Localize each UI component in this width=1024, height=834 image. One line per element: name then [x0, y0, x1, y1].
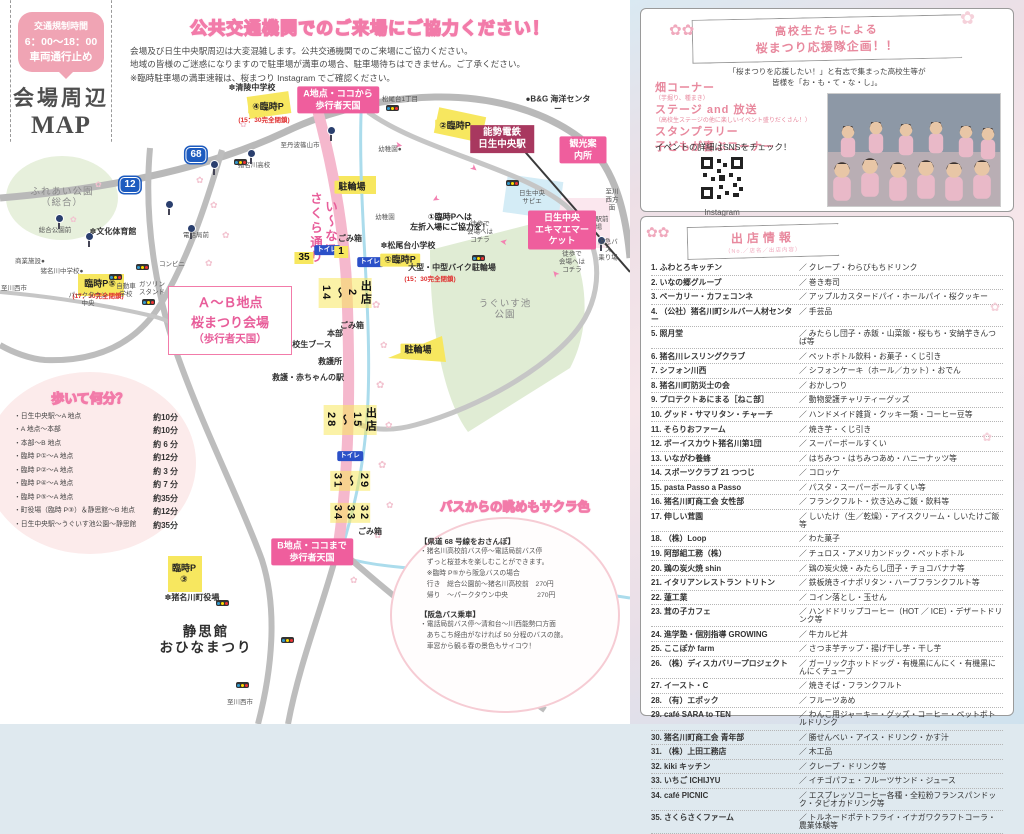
walk-time-row: ・臨時 P⑤～A 地点約35分 — [14, 492, 178, 505]
shop-row: 10. グッド・サマリタン・チャーチ／ハンドメイド雑貨・クッキー類・コーヒー豆等 — [651, 408, 1003, 423]
walk-time-row: ・臨時 P④～A 地点約 7 分 — [14, 478, 178, 491]
shop-row: 2. いなの郷グループ／巻き寿司 — [651, 276, 1003, 291]
shop-items: クレープ・わらびもちドリンク — [809, 263, 918, 272]
bus-info-line: あちこち経由がなければ 50 分程のバスの旅。 — [420, 631, 598, 642]
shop-name: 20. 鶏の炭火焼 shin — [651, 565, 799, 573]
bus-info-line: 車窓から観る春の景色もサイコウ！ — [420, 642, 598, 653]
shop-name: 3. ベーカリー・カフェコンネ — [651, 293, 799, 301]
walk-time-row: ・A 地点～本部約10分 — [14, 424, 178, 437]
walk-times-title: 歩いて何分？ — [0, 388, 196, 407]
walk-times-panel: 歩いて何分？ ・日生中央駅～A 地点約10分・A 地点～本部約10分・本部～B … — [0, 372, 196, 554]
walk-route: ・本部～B 地点 — [14, 438, 61, 451]
map-label: 至川西市 — [1, 285, 27, 293]
map-label: (15：30完全閉鎖) — [404, 276, 455, 284]
flyer-page: 交通規制時間 6：00～18：00 車両通行止め 会場周辺 MAP 公共交通機関… — [0, 0, 1024, 724]
shop-name: 10. グッド・サマリタン・チャーチ — [651, 411, 799, 419]
shop-items-cell: ／わた菓子 — [799, 535, 1003, 543]
map-label: 至丹波篠山市 — [281, 142, 320, 150]
shop-row: 5. 照月堂／みたらし団子・赤飯・山菜飯・桜もち・安納芋きんつば等 — [651, 327, 1003, 349]
bus-info-line: ※臨時 P⑤から阪急バスの場合 — [420, 569, 598, 580]
map-label: 至川西市 — [227, 699, 253, 707]
bus-info-line: ・猪名川高校前バス停～電話局前バス停 — [420, 547, 598, 558]
shop-row: 9. プロテクトあにまる［ねこ部］／動物愛護チャリティーグッズ — [651, 393, 1003, 408]
shop-name: 21. イタリアンレストラン トリトン — [651, 579, 799, 587]
shop-name: 30. 猪名川町商工会 青年部 — [651, 734, 799, 742]
shop-items-cell: ／焼き芋・くじ引き — [799, 426, 1003, 434]
bus-stop-icon — [168, 206, 170, 215]
bus-view-title: バスからの眺めもサクラ色 — [390, 496, 630, 515]
shop-list: 1. ふわとろキッチン／クレープ・わらびもちドリンク2. いなの郷グループ／巻き… — [651, 261, 1003, 834]
shop-name: 8. 猪名川町防災士の会 — [651, 382, 799, 390]
map-label: ✽文化体育館 — [90, 227, 137, 237]
shop-items: 焼きそば・フランクフルト — [809, 681, 903, 690]
sakura-icon: ✿ — [990, 300, 1000, 314]
shop-row: 32. kiki キッチン／クレープ・ドリンク等 — [651, 760, 1003, 775]
shop-row: 35. さくらさくファーム／トルネードポテトフライ・イナガワクラフトコーラ・農業… — [651, 811, 1003, 833]
feature-note: （高校生ステージの他に楽しいイベント盛りだくさん！） — [655, 118, 845, 125]
map-label: 32 33 34 — [330, 503, 370, 523]
feature-name: 畑コーナー — [655, 81, 845, 96]
shop-items-cell: ／エスプレッソコーヒー各種・全粒粉フランスパンドック・タピオカドリンク等 — [799, 792, 1003, 808]
shop-items: しいたけ（生／乾燥）・アイスクリーム・しいたけご飯等 — [799, 512, 999, 529]
shop-items: 巻き寿司 — [809, 278, 840, 287]
map-label: 救護所 — [318, 357, 342, 367]
sakura-icon: ✿ — [378, 460, 386, 471]
shop-items-cell: ／ハンドドリップコーヒー（HOT ／ ICE）・デザートドリンク等 — [799, 608, 1003, 624]
shop-items-cell: ／手芸品 — [799, 308, 1003, 324]
traffic-light-icon — [109, 274, 122, 280]
traffic-light-icon — [506, 180, 519, 186]
shop-items-cell: ／勝せんべい・アイス・ドリンク・かす汁 — [799, 734, 1003, 742]
shop-items-cell: ／フルーツあめ — [799, 697, 1003, 705]
sakura-icon: ✿ — [982, 430, 992, 444]
shop-row: 31. （株）上田工務店／木工品 — [651, 745, 1003, 760]
shop-name: 15. pasta Passo a Passo — [651, 484, 799, 492]
shop-items-cell: ／巻き寿司 — [799, 279, 1003, 287]
shop-separator: ／ — [799, 534, 807, 543]
shop-row: 28. （有）エポック／フルーツあめ — [651, 694, 1003, 709]
shop-items-cell: ／チュロス・アメリカンドック・ペットボトル — [799, 550, 1003, 558]
walk-route: ・A 地点～本部 — [14, 424, 61, 437]
shop-name: 6. 猪名川レスリングクラブ — [651, 353, 799, 361]
info-panel: ✿ ✿ ✿ ✿✿ 高校生たちによる 桜まつり応援隊企画！！ 「桜まつりを応援した… — [630, 0, 1024, 724]
map-label: 電話局前 — [183, 232, 209, 240]
shop-items-cell: ／ハンドメイド雑貨・クッキー類・コーヒー豆等 — [799, 411, 1003, 419]
shop-items: わた菓子 — [809, 534, 840, 543]
shop-separator: ／ — [799, 263, 807, 272]
shop-items: ペットボトル飲料・お菓子・くじ引き — [809, 352, 942, 361]
walk-minutes: 約10分 — [153, 424, 178, 437]
shop-items-cell: ／みたらし団子・赤飯・山菜飯・桜もち・安納芋きんつば等 — [799, 330, 1003, 346]
shop-name: 26. （株）ディスカバリープロジェクト — [651, 660, 799, 676]
walk-minutes: 約35分 — [153, 492, 178, 505]
map-label: 幼稚園● — [378, 146, 401, 154]
map-label: ごみ箱 — [338, 234, 362, 244]
shop-items: フルーツあめ — [809, 696, 856, 705]
shop-separator: ／ — [799, 454, 807, 463]
shop-items: 鉄板焼きイナポリタン・ハーブフランクフルト等 — [809, 578, 980, 587]
shop-row: 7. シフォン川西／シフォンケーキ（ホール／カット）・おでん — [651, 364, 1003, 379]
shop-items: エスプレッソコーヒー各種・全粒粉フランスパンドック・タピオカドリンク等 — [799, 791, 996, 808]
walk-minutes: 約 3 分 — [153, 465, 178, 478]
shop-row: 24. 進学塾・個別指導 GROWING／牛カルビ丼 — [651, 627, 1003, 642]
shop-items-cell: ／クレープ・わらびもちドリンク — [799, 264, 1003, 272]
walk-time-row: ・日生中央駅～A 地点約10分 — [14, 411, 178, 424]
feature-name: スタンプラリー — [655, 125, 845, 140]
map-label: 能勢電鉄 日生中央駅 — [470, 125, 534, 153]
sakura-icon: ✿ — [222, 230, 230, 241]
shop-items: はちみつ・はちみつあめ・ハニーナッツ等 — [809, 454, 957, 463]
shop-name: 7. シフォン川西 — [651, 367, 799, 375]
shop-name: 14. スポーツクラブ 21 つつじ — [651, 469, 799, 477]
map-label: ふれあい公園 （総合） — [30, 187, 93, 210]
sakura-icon: ✿ — [372, 300, 380, 311]
shop-items-cell: ／ガーリックホットドッグ・有機黒にんにく・有機黒にんにくチューブ — [799, 660, 1003, 676]
map-label: 至川西方面 — [603, 188, 621, 211]
map-label: パークタウン 中央 — [69, 292, 108, 308]
shop-row: 12. ボーイスカウト猪名川第1団／スーパーボールすくい — [651, 437, 1003, 452]
shop-separator: ／ — [799, 366, 807, 375]
shop-items: コロッケ — [809, 468, 840, 477]
shop-separator: ／ — [799, 593, 807, 602]
traffic-light-icon — [386, 105, 399, 111]
shop-row: 11. そらりおファーム／焼き芋・くじ引き — [651, 422, 1003, 437]
shop-name: 35. さくらさくファーム — [651, 814, 799, 830]
traffic-light-icon — [142, 299, 155, 305]
map-label: 救護・赤ちゃんの駅 — [272, 373, 344, 383]
shop-items-cell: ／焼きそば・フランクフルト — [799, 682, 1003, 690]
shop-items-cell: ／さつま芋チップ・揚げ干し芋・干し芋 — [799, 645, 1003, 653]
feature-name: ステージ and 放送 — [655, 103, 845, 118]
walk-minutes: 約12分 — [153, 505, 178, 518]
map-label: 日生中央 エキマエマーケット — [528, 210, 596, 249]
sakura-icon: ✿ — [350, 575, 358, 586]
shop-items-cell: ／わんこ用ジャーキー・グッズ・コーヒー・ペットボトルドリンク — [799, 711, 1003, 727]
shop-items: コイン落とし・玉せん — [809, 593, 887, 602]
bus-info-line: ・電話局前バス停～清和台～川西能勢口方面 — [420, 620, 598, 631]
feature-note: （芋掘り、種まき） — [655, 96, 845, 103]
shop-row: 20. 鶏の炭火焼 shin／鶏の炭火焼・みたらし団子・チョコバナナ等 — [651, 561, 1003, 576]
shop-items: 鶏の炭火焼・みたらし団子・チョコバナナ等 — [809, 564, 965, 573]
shop-items: 勝せんべい・アイス・ドリンク・かす汁 — [809, 733, 949, 742]
shop-row: 19. 阿部組工務（株）／チュロス・アメリカンドック・ペットボトル — [651, 547, 1003, 562]
shop-items: イチゴパフェ・フルーツサンド・ジュース — [809, 776, 956, 785]
shop-items: 木工品 — [809, 747, 832, 756]
shop-items: チュロス・アメリカンドック・ペットボトル — [809, 549, 965, 558]
bus-info-line: ずっと桜並木を楽しむことができます。 — [420, 558, 598, 569]
map-label: ✽松尾台小学校 — [381, 241, 436, 251]
shops-box: 出店情報 （No.／店名／出店内容） 1. ふわとろキッチン／クレープ・わらびも… — [640, 216, 1014, 716]
shop-items-cell: ／おかしつり — [799, 382, 1003, 390]
shop-row: 22. 蓮工業／コイン落とし・玉せん — [651, 591, 1003, 606]
shop-row: 15. pasta Passo a Passo／パスタ・スーパーボールすくい等 — [651, 481, 1003, 496]
map-label: 12 — [119, 177, 140, 193]
bus-stop-icon — [330, 132, 332, 141]
map-label: 駐輪場 — [400, 344, 435, 357]
traffic-light-icon — [281, 637, 294, 643]
shop-name: 17. 伸しい茸園 — [651, 513, 799, 529]
shop-items: 動物愛護チャリティーグッズ — [809, 395, 910, 404]
map-label: 出店 15 ～ 28 — [324, 405, 377, 435]
shop-separator: ／ — [799, 410, 807, 419]
shops-ribbon: 出店情報 （No.／店名／出店内容） — [687, 223, 840, 260]
shop-items: スーパーボールすくい — [809, 439, 887, 448]
shop-separator: ／ — [799, 381, 807, 390]
shop-separator: ／ — [799, 776, 807, 785]
shop-separator: ／ — [799, 425, 807, 434]
shop-name: 16. 猪名川町商工会 女性部 — [651, 498, 799, 506]
shop-row: 18. （株）Loop／わた菓子 — [651, 532, 1003, 547]
shop-row: 26. （株）ディスカバリープロジェクト／ガーリックホットドッグ・有機黒にんにく… — [651, 657, 1003, 679]
map-label: トイレ — [357, 257, 383, 267]
shop-row: 14. スポーツクラブ 21 つつじ／コロッケ — [651, 466, 1003, 481]
shop-separator: ／ — [799, 395, 807, 404]
shop-items-cell: ／はちみつ・はちみつあめ・ハニーナッツ等 — [799, 455, 1003, 463]
sakura-icon: ✿✿ — [669, 21, 694, 39]
shop-name: 1. ふわとろキッチン — [651, 264, 799, 272]
map-label: 猪名川中学校● — [41, 268, 84, 276]
sakura-icon: ✿ — [95, 180, 102, 189]
traffic-light-icon — [236, 682, 249, 688]
shop-row: 34. café PICNIC／エスプレッソコーヒー各種・全粒粉フランスパンドッ… — [651, 789, 1003, 811]
shop-items-cell: ／スーパーボールすくい — [799, 440, 1003, 448]
bus-view-panel: バスからの眺めもサクラ色 【県道 68 号線をおさんぽ】 ・猪名川高校前バス停～… — [390, 496, 630, 713]
shop-items-cell: ／コイン落とし・玉せん — [799, 594, 1003, 602]
shop-separator: ／ — [799, 762, 807, 771]
shop-items: トルネードポテトフライ・イナガワクラフトコーラ・農業体験等 — [799, 813, 996, 830]
sns-note: イベントの詳細はSNSをチェック！ — [655, 141, 791, 153]
map-label: A地点・ココから 歩行者天国 — [297, 86, 379, 113]
bus-info-line: 帰り ～パークタウン中央 270円 — [420, 591, 598, 602]
shop-items-cell: ／シフォンケーキ（ホール／カット）・おでん — [799, 367, 1003, 375]
shop-separator: ／ — [799, 733, 807, 742]
shop-row: 30. 猪名川町商工会 青年部／勝せんべい・アイス・ドリンク・かす汁 — [651, 731, 1003, 746]
shop-row: 1. ふわとろキッチン／クレープ・わらびもちドリンク — [651, 261, 1003, 276]
shop-separator: ／ — [799, 578, 807, 587]
shop-name: 31. （株）上田工務店 — [651, 748, 799, 756]
map-label: ごみ箱 — [358, 527, 382, 537]
shop-items-cell: ／鶏の炭火焼・みたらし団子・チョコバナナ等 — [799, 565, 1003, 573]
traffic-light-icon — [234, 159, 247, 165]
shop-items-cell: ／牛カルビ丼 — [799, 631, 1003, 639]
shop-row: 13. いながわ養蜂／はちみつ・はちみつあめ・ハニーナッツ等 — [651, 452, 1003, 467]
festival-area-line2: 桜まつり会場 — [171, 313, 289, 333]
bus-section2-title: 【阪急バス乗車】 — [420, 609, 598, 620]
shop-items-cell: ／ペットボトル飲料・お菓子・くじ引き — [799, 353, 1003, 361]
shop-row: 16. 猪名川町商工会 女性部／フランクフルト・炊き込みご飯・飲料等 — [651, 495, 1003, 510]
support-subtitle: 「桜まつりを応援したい！」と有志で集まった高校生等が — [641, 66, 1013, 77]
shop-name: 11. そらりおファーム — [651, 426, 799, 434]
shop-items-cell: ／コロッケ — [799, 469, 1003, 477]
shop-row: 6. 猪名川レスリングクラブ／ペットボトル飲料・お菓子・くじ引き — [651, 349, 1003, 364]
shop-items: さつま芋チップ・揚げ干し芋・干し芋 — [809, 644, 942, 653]
shop-separator: ／ — [799, 352, 807, 361]
bus-info-line: 行き 総合公園前～猪名川高校前 270円 — [420, 580, 598, 591]
shop-name: 5. 照月堂 — [651, 330, 799, 346]
map-label: ガソリン スタンド — [139, 281, 165, 297]
walk-time-row: ・本部～B 地点約 6 分 — [14, 438, 178, 451]
map-label: 総合公園前 — [39, 227, 72, 235]
shop-items: おかしつり — [809, 381, 848, 390]
shop-name: 25. ここぽか farm — [651, 645, 799, 653]
walk-time-row: ・臨時 P②～A 地点約 3 分 — [14, 465, 178, 478]
walk-route: ・日生中央駅～A 地点 — [14, 411, 81, 424]
shop-items: パスタ・スーパーボールすくい等 — [809, 483, 926, 492]
walk-route: ・臨時 P④～A 地点 — [14, 478, 73, 491]
festival-area-line1: Ａ～Ｂ地点 — [171, 293, 289, 313]
shop-separator: ／ — [799, 549, 807, 558]
shop-name: 29. café SARA to TEN — [651, 711, 799, 727]
support-ribbon: 高校生たちによる 桜まつり応援隊企画！！ — [692, 14, 963, 64]
shop-separator: ／ — [799, 747, 807, 756]
shop-name: 34. café PICNIC — [651, 792, 799, 808]
shop-name: 22. 蓮工業 — [651, 594, 799, 602]
map-label: 自動車 学校 — [116, 283, 136, 299]
students-photo — [827, 93, 1001, 207]
shop-items: ハンドドリップコーヒー（HOT ／ ICE）・デザートドリンク等 — [799, 607, 1002, 624]
shop-name: 13. いながわ養蜂 — [651, 455, 799, 463]
shop-name: 28. （有）エポック — [651, 697, 799, 705]
map-label: トイレ — [337, 451, 363, 461]
shop-separator: ／ — [799, 564, 807, 573]
shop-items: みたらし団子・赤飯・山菜飯・桜もち・安納芋きんつば等 — [799, 329, 996, 346]
map-label: B地点・ココまで 歩行者天国 — [271, 538, 353, 565]
shop-separator: ／ — [799, 483, 807, 492]
map-label: 出店 2 ～ 14 — [319, 278, 372, 308]
shop-name: 27. イースト・C — [651, 682, 799, 690]
sakura-icon: ✿ — [210, 200, 218, 211]
map-label: 徒歩で 会場へは コチラ — [559, 250, 585, 273]
festival-area-line3: （歩行者天国） — [171, 332, 289, 348]
shop-items: ガーリックホットドッグ・有機黒にんにく・有機黒にんにくチューブ — [799, 659, 996, 676]
shop-separator: ／ — [799, 497, 807, 506]
shop-separator: ／ — [799, 696, 807, 705]
shop-name: 32. kiki キッチン — [651, 763, 799, 771]
map-label: コンビニ — [159, 261, 185, 269]
map-label: 阪急バス 乗り場 — [597, 238, 619, 261]
map-label: 臨時P ③ — [168, 562, 200, 586]
sakura-icon: ✿✿ — [646, 224, 669, 241]
walk-minutes: 約 6 分 — [153, 438, 178, 451]
shop-separator: ／ — [799, 439, 807, 448]
shop-separator: ／ — [799, 681, 807, 690]
walk-route: ・臨時 P⑤～A 地点 — [14, 492, 73, 505]
walk-route: ・臨時 P①～A 地点 — [14, 451, 73, 464]
bus-stop-icon — [213, 166, 215, 175]
map-label: 商業施設● — [15, 258, 45, 266]
shop-items-cell: ／しいたけ（生／乾燥）・アイスクリーム・しいたけご飯等 — [799, 513, 1003, 529]
south-road — [288, 548, 338, 724]
shop-items-cell: ／イチゴパフェ・フルーツサンド・ジュース — [799, 777, 1003, 785]
shop-name: 23. 茸の子カフェ — [651, 608, 799, 624]
shop-row: 21. イタリアンレストラン トリトン／鉄板焼きイナポリタン・ハーブフランクフル… — [651, 576, 1003, 591]
shop-name: 18. （株）Loop — [651, 535, 799, 543]
shop-row: 23. 茸の子カフェ／ハンドドリップコーヒー（HOT ／ ICE）・デザートドリ… — [651, 605, 1003, 627]
walk-route: ・臨時 P②～A 地点 — [14, 465, 73, 478]
map-label: うぐいす池 公園 — [479, 299, 532, 322]
qr-code-icon[interactable] — [699, 155, 745, 201]
sakura-icon: ✿ — [70, 215, 77, 224]
walk-time-row: ・町役場（臨時 P③）＆静思館～B 地点約12分 — [14, 505, 178, 518]
walk-minutes: 約10分 — [153, 411, 178, 424]
map-label: ②臨時P — [435, 120, 475, 133]
shop-items-cell: ／鉄板焼きイナポリタン・ハーブフランクフルト等 — [799, 579, 1003, 587]
map-label: 松尾台1丁目 — [382, 96, 418, 104]
shop-separator: ／ — [799, 644, 807, 653]
map-label: 68 — [185, 147, 206, 163]
bus-stop-icon — [88, 238, 90, 247]
sakura-icon: ✿ — [376, 380, 384, 391]
shop-separator: ／ — [799, 630, 807, 639]
shop-items: クレープ・ドリンク等 — [809, 762, 887, 771]
shop-row: 4. （公社）猪名川町シルバー人材センター／手芸品 — [651, 305, 1003, 327]
map-label: ①臨時Pへは 左折入場にご協力を！ — [410, 212, 490, 231]
shop-items: 牛カルビ丼 — [809, 630, 848, 639]
map-label: 日生中央 サピエ — [519, 190, 545, 206]
sakura-icon: ✿ — [385, 420, 393, 431]
shop-items-cell: ／パスタ・スーパーボールすくい等 — [799, 484, 1003, 492]
qr-block: Instagram — [699, 155, 745, 217]
shop-items: 焼き芋・くじ引き — [809, 425, 871, 434]
walk-minutes: 約 7 分 — [153, 478, 178, 491]
walk-route: ・町役場（臨時 P③）＆静思館～B 地点 — [14, 505, 135, 518]
map-label: 駐輪場 — [334, 181, 369, 194]
shop-name: 33. いちご ICHIJYU — [651, 777, 799, 785]
shop-name: 24. 進学塾・個別指導 GROWING — [651, 631, 799, 639]
shop-row: 27. イースト・C／焼きそば・フランクフルト — [651, 679, 1003, 694]
shop-items-cell: ／動物愛護チャリティーグッズ — [799, 396, 1003, 404]
traffic-light-icon — [136, 264, 149, 270]
shop-items: 手芸品 — [809, 307, 832, 316]
shop-items-cell: ／クレープ・ドリンク等 — [799, 763, 1003, 771]
map-label: ✽清陵中学校 — [229, 83, 276, 93]
shop-row: 25. ここぽか farm／さつま芋チップ・揚げ干し芋・干し芋 — [651, 642, 1003, 657]
bus-section1-title: 【県道 68 号線をおさんぽ】 — [420, 536, 598, 547]
shop-items: シフォンケーキ（ホール／カット）・おでん — [809, 366, 961, 375]
shop-items: フランクフルト・炊き込みご飯・飲料等 — [809, 497, 949, 506]
map-label: ✽猪名川町役場 — [165, 593, 220, 603]
festival-area-box: Ａ～Ｂ地点 桜まつり会場 （歩行者天国） — [168, 286, 292, 355]
shop-items-cell: ／アップルカスタードパイ・ホールパイ・桜クッキー — [799, 293, 1003, 301]
shop-row: 29. café SARA to TEN／わんこ用ジャーキー・グッズ・コーヒー・… — [651, 708, 1003, 730]
map-label: 本部 — [327, 329, 343, 339]
map-label: 観光案内所 — [560, 136, 607, 163]
shop-items: わんこ用ジャーキー・グッズ・コーヒー・ペットボトルドリンク — [799, 710, 996, 727]
shop-row: 3. ベーカリー・カフェコンネ／アップルカスタードパイ・ホールパイ・桜クッキー — [651, 290, 1003, 305]
map-label: ④臨時P — [248, 101, 288, 114]
map-label: 1 — [334, 246, 348, 258]
map-label: 大型・中型バイク駐輪場 — [408, 263, 496, 273]
shop-row: 33. いちご ICHIJYU／イチゴパフェ・フルーツサンド・ジュース — [651, 774, 1003, 789]
map-label: (15：30完全閉鎖) — [238, 117, 289, 125]
shop-items-cell: ／木工品 — [799, 748, 1003, 756]
sakura-icon: ✿ — [196, 175, 204, 186]
map-label: 29 ～ 31 — [330, 471, 370, 491]
walk-time-row: ・臨時 P①～A 地点約12分 — [14, 451, 178, 464]
traffic-light-icon — [472, 255, 485, 261]
shop-name: 2. いなの郷グループ — [651, 279, 799, 287]
map-panel: 交通規制時間 6：00～18：00 車両通行止め 会場周辺 MAP 公共交通機関… — [0, 0, 630, 724]
support-team-box: ✿✿ 高校生たちによる 桜まつり応援隊企画！！ 「桜まつりを応援したい！」と有志… — [640, 8, 1014, 212]
shop-items: ハンドメイド雑貨・クッキー類・コーヒー豆等 — [809, 410, 973, 419]
shop-separator: ／ — [799, 278, 807, 287]
shop-name: 9. プロテクトあにまる［ねこ部］ — [651, 396, 799, 404]
map-label: 35 — [294, 252, 313, 264]
map-label: ごみ箱 — [340, 321, 364, 331]
walk-minutes: 約12分 — [153, 451, 178, 464]
shop-name: 4. （公社）猪名川町シルバー人材センター — [651, 308, 799, 324]
walk-route: ・日生中央駅～うぐいす池公園～静思館 — [14, 519, 136, 532]
